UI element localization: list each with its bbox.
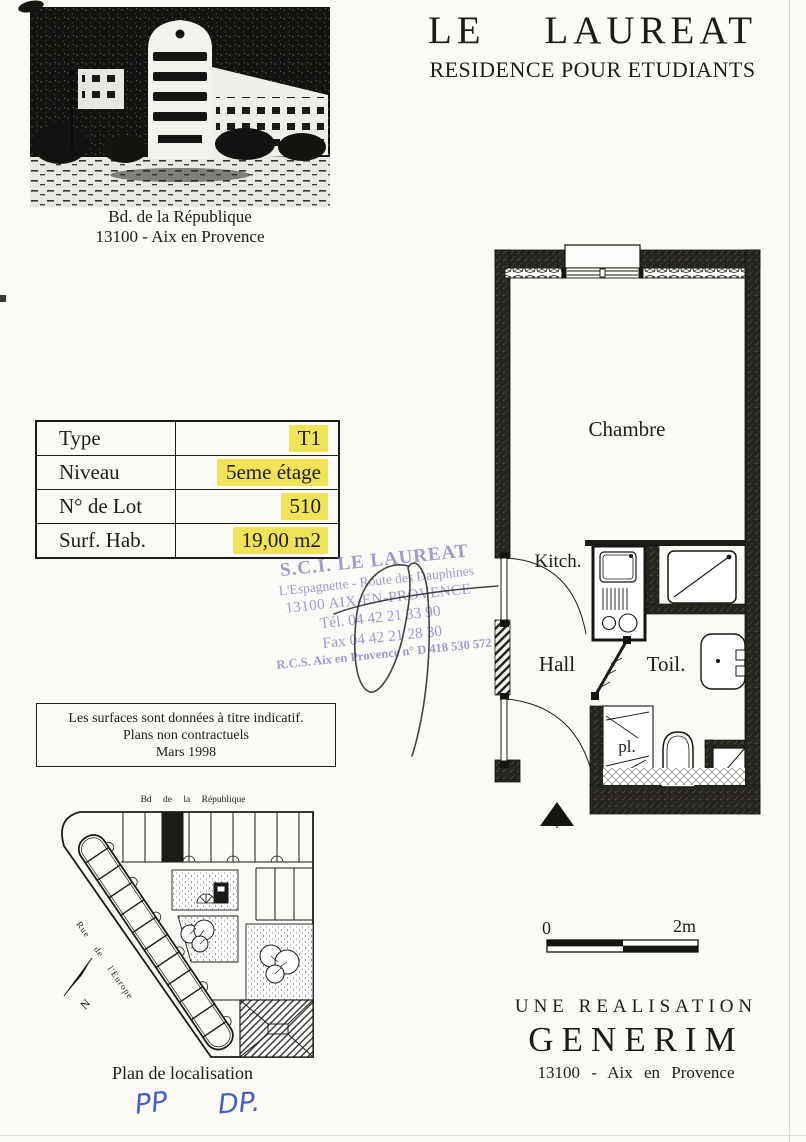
room-label-toil: Toil. — [647, 652, 686, 676]
handwritten-pp: PP — [133, 1086, 169, 1121]
highlighted-value: 5eme étage — [217, 459, 328, 486]
floor-plan: Chambre Kitch. Hall Toil. pl. — [488, 244, 766, 828]
info-label: N° de Lot — [37, 490, 176, 523]
surface-notice: Les surfaces sont données à titre indica… — [36, 703, 336, 767]
handwritten-dp: DP. — [217, 1087, 261, 1121]
info-value: 510 — [176, 494, 338, 519]
developer-name: GENERIM — [505, 1020, 767, 1060]
photo-caption-street: Bd. de la République — [30, 207, 330, 227]
street-label-top: Bd de la République — [141, 795, 246, 805]
info-label: Niveau — [37, 456, 176, 489]
scale-bar: 0 2m — [530, 912, 710, 960]
entry-arrow-icon — [540, 802, 574, 828]
basin-tap — [736, 650, 745, 660]
table-row: Type T1 — [37, 422, 338, 455]
notice-line: Mars 1998 — [37, 744, 335, 761]
room-label-pl: pl. — [618, 737, 635, 756]
street-label-side: Rue de l'Europe — [74, 919, 135, 1001]
kitchenette-unit — [593, 546, 645, 640]
roof-building — [240, 1000, 313, 1057]
scale-bar-graphic — [547, 940, 698, 952]
developer-tagline: UNE REALISATION — [505, 996, 767, 1018]
scale-start-label: 0 — [542, 918, 551, 938]
balcony-recess — [565, 245, 640, 268]
scale-end-label: 2m — [673, 916, 696, 936]
highlighted-value: 510 — [281, 493, 329, 520]
shower-drain — [727, 555, 732, 560]
photo-caption-city: 13100 - Aix en Provence — [30, 227, 330, 247]
photo-illustration — [30, 7, 330, 207]
title-block: LE LAUREAT RESIDENCE POUR ETUDIANTS — [420, 8, 765, 83]
washbasin — [701, 634, 745, 689]
pen-loop-annotation — [330, 390, 510, 770]
handwritten-initials: PP DP. — [135, 1088, 315, 1119]
location-plan-caption: Plan de localisation — [90, 1063, 275, 1084]
info-value: T1 — [176, 426, 338, 451]
table-row: Niveau 5eme étage — [37, 455, 338, 489]
sink-faucet — [629, 554, 633, 558]
info-value: 19,00 m2 — [176, 528, 338, 553]
paper-edge-right — [789, 0, 790, 1142]
photo-caption: Bd. de la République 13100 - Aix en Prov… — [30, 207, 330, 247]
highlighted-value: T1 — [289, 425, 328, 452]
room-label-kitch: Kitch. — [535, 551, 582, 572]
entry-mat-hatch — [603, 768, 745, 785]
unit-info-table: Type T1 Niveau 5eme étage N° de Lot 510 … — [35, 420, 340, 559]
table-row: N° de Lot 510 — [37, 489, 338, 523]
page-title: LE LAUREAT — [420, 8, 765, 53]
info-label: Type — [37, 422, 176, 455]
scan-artifact-tick — [0, 295, 6, 302]
north-label: N — [77, 996, 93, 1012]
page-subtitle: RESIDENCE POUR ETUDIANTS — [420, 57, 765, 83]
paper-edge-bottom — [0, 1135, 806, 1136]
developer-block: UNE REALISATION GENERIM 13100 - Aix en P… — [505, 996, 767, 1083]
shower-tray — [668, 551, 736, 603]
info-label: Surf. Hab. — [37, 524, 176, 557]
notice-line: Les surfaces sont données à titre indica… — [37, 710, 335, 727]
info-value: 5eme étage — [176, 460, 338, 485]
highlighted-value: 19,00 m2 — [233, 527, 328, 554]
drain-rack — [603, 588, 627, 610]
notice-line: Plans non contractuels — [37, 727, 335, 744]
table-row: Surf. Hab. 19,00 m2 — [37, 523, 338, 557]
room-label-hall: Hall — [539, 652, 575, 676]
highlighted-building-unit — [162, 812, 183, 862]
north-arrow-icon: N — [64, 958, 93, 1012]
building-photo — [30, 7, 330, 207]
window-mullion — [600, 269, 605, 277]
entry-door-arc — [507, 699, 591, 770]
room-label-chambre: Chambre — [589, 417, 666, 441]
developer-city: 13100 - Aix en Provence — [505, 1063, 767, 1083]
location-plan: Bd de la République — [28, 784, 328, 1084]
